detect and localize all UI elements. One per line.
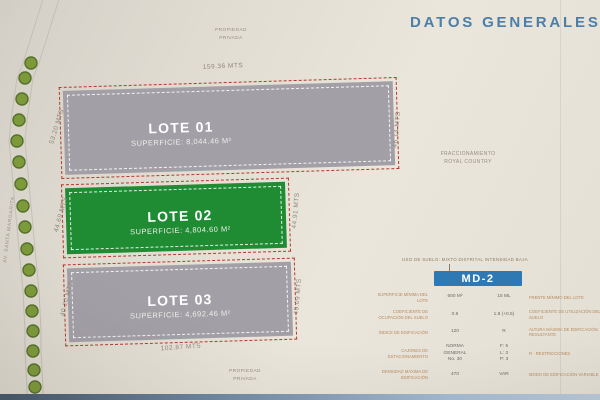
row-value-right: 1.8 (+0.5) (482, 312, 526, 318)
zoning-row-estacionamiento: CAJONES DE ESTACIONAMIENTO NORMA GENERAL… (372, 344, 598, 363)
north-boundary-note: PROPIEDAD PRIVADA (196, 27, 266, 42)
lot-03-name: LOTE 03 (147, 291, 213, 309)
row-label-left: CAJONES DE ESTACIONAMIENTO (372, 348, 428, 359)
zoning-row-densidad: DENSIDAD MÁXIMA DE EDIFICACIÓN 470 VAR M… (372, 369, 598, 380)
row-label-left: SUPERFICIE MÍNIMA DEL LOTE (372, 292, 428, 303)
lot-01: LOTE 01 SUPERFICIE: 8,044.46 M² (63, 81, 395, 175)
row-label-left: COEFICIENTE DE OCUPACIÓN DEL SUELO (372, 309, 428, 320)
row-value-right: 15 ML (482, 294, 526, 300)
paper-fold-line (560, 0, 562, 400)
row-label-right: ALTURA MÁXIMA DE EDIFICACIÓN: RESULTANTE (529, 327, 600, 338)
tree-icon (26, 305, 38, 317)
lot-01-name: LOTE 01 (148, 118, 214, 136)
zoning-row-coeficientes: COEFICIENTE DE OCUPACIÓN DEL SUELO 0.6 1… (372, 309, 598, 320)
zoning-code-badge: MD-2 (434, 271, 522, 286)
tree-icon (25, 285, 37, 297)
lot-02: LOTE 02 SUPERFICIE: 4,804.60 M² (65, 182, 287, 254)
tree-icon (19, 72, 31, 84)
row-value-left: NORMA GENERAL No. 30 (431, 344, 479, 363)
south-boundary-line1: PROPIEDAD (210, 368, 280, 376)
lot-01-area: SUPERFICIE: 8,044.46 M² (131, 135, 232, 147)
tree-icon (29, 381, 41, 393)
tree-icon (27, 325, 39, 337)
east-boundary-line2: ROYAL COUNTRY (424, 158, 512, 166)
tree-icon (17, 200, 29, 212)
row-value-right: F: 5 L: 3 P: 3 (482, 344, 526, 363)
zoning-row-superficie: SUPERFICIE MÍNIMA DEL LOTE 600 M² 15 ML … (372, 292, 598, 303)
row-label-left: DENSIDAD MÁXIMA DE EDIFICACIÓN (372, 369, 428, 380)
tree-icon (27, 345, 39, 357)
row-label-right: COEFICIENTE DE UTILIZACIÓN DEL SUELO (529, 309, 600, 320)
row-label-left: ÍNDICE DE EDIFICACIÓN (372, 330, 428, 336)
page-title: DATOS GENERALES (410, 14, 600, 31)
row-value-left: 600 M² (431, 294, 479, 300)
tree-icon (15, 178, 27, 190)
lot-03-area: SUPERFICIE: 4,692.46 M² (130, 308, 231, 320)
row-label-right: R · RESTRICCIONES (529, 351, 600, 357)
row-label-right: FRENTE MÍNIMO DEL LOTE (529, 295, 600, 301)
row-value-left: 470 (431, 372, 479, 378)
tree-icon (28, 364, 40, 376)
east-boundary-note: FRACCIONAMIENTO ROYAL COUNTRY (424, 150, 512, 166)
zoning-table: SUPERFICIE MÍNIMA DEL LOTE 600 M² 15 ML … (372, 292, 598, 381)
row-value-right: R (482, 329, 526, 335)
lot-02-name: LOTE 02 (147, 206, 213, 224)
north-boundary-line2: PRIVADA (196, 35, 266, 43)
south-boundary-line2: PRIVADA (210, 376, 280, 384)
photo-edge-strip (0, 394, 600, 400)
lot-02-area: SUPERFICIE: 4,804.60 M² (130, 224, 231, 236)
zoning-row-indice: ÍNDICE DE EDIFICACIÓN 120 R ALTURA MÁXIM… (372, 327, 598, 338)
south-boundary-note: PROPIEDAD PRIVADA (210, 368, 280, 383)
north-boundary-line1: PROPIEDAD (196, 27, 266, 35)
row-value-left: 120 (431, 329, 479, 335)
east-boundary-line1: FRACCIONAMIENTO (424, 150, 512, 158)
tree-icon (21, 243, 33, 255)
row-value-left: 0.6 (431, 312, 479, 318)
tree-icon (25, 57, 37, 69)
tree-icon (19, 221, 31, 233)
lot-03: LOTE 03 SUPERFICIE: 4,692.46 M² (67, 262, 293, 343)
tree-icon (23, 264, 35, 276)
site-plan-sheet: DATOS GENERALES LOTE 01 SUPERFICIE: 8,04… (0, 0, 600, 400)
row-value-right: VAR (482, 372, 526, 378)
land-use-caption: USO DE SUELO: MIXTO DISTRITAL INTENSIDAD… (398, 257, 532, 262)
caption-connector-line (449, 264, 450, 271)
row-label-right: MODO DE EDIFICACIÓN VARIABLE (529, 372, 600, 378)
